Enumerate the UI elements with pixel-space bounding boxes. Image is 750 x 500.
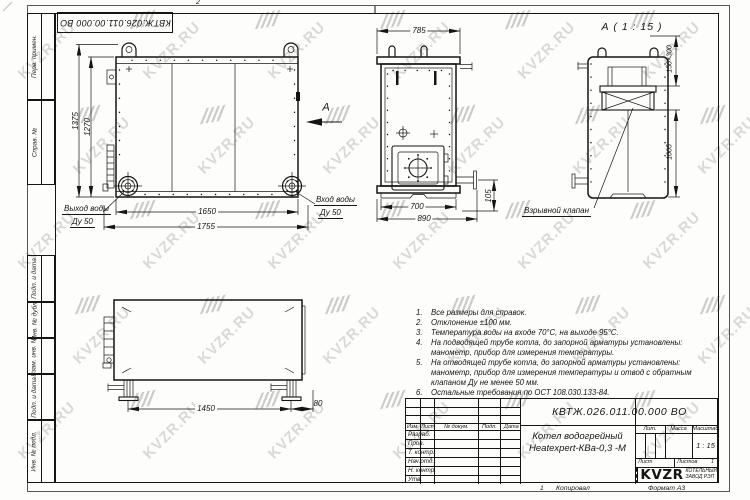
tb-sheet-label: Лист bbox=[638, 460, 652, 466]
tb-scale-value: 1 : 15 bbox=[692, 442, 719, 450]
tb-organization: KVZR КОТЕЛЬНЫЙ ЗАВОД РЭП bbox=[635, 467, 717, 482]
note-line: 4.На подводящей трубе котла, до запорной… bbox=[416, 338, 712, 348]
tb-rev-header: Дата bbox=[504, 425, 519, 431]
tb-rev-header: Изм. bbox=[407, 425, 419, 431]
tb-line bbox=[635, 433, 719, 434]
tb-sig-row: Пров. bbox=[408, 441, 424, 447]
tb-sig-row: Утв. bbox=[408, 477, 422, 483]
outlet-dn-label: Ду 50 bbox=[70, 218, 95, 228]
note-line: манометр, прибор для измерения температу… bbox=[416, 368, 712, 378]
note-line: 2.Отклонение ±100 мм. bbox=[416, 318, 712, 328]
designation-stamp: КВТЖ.026.011.00.000 ВО bbox=[57, 12, 173, 33]
margin-label: Справ. № bbox=[31, 128, 38, 158]
title-block: Изм. Лист № докум. Подп. Дата Разраб. Пр… bbox=[405, 398, 718, 483]
tb-sig-row: Т. контр. bbox=[408, 450, 435, 456]
margin-cell-divider bbox=[41, 101, 42, 184]
section-view-title: А ( 1 : 15 ) bbox=[601, 22, 662, 33]
format-label: Формат А3 bbox=[648, 485, 685, 492]
dim-side-overall: 890 bbox=[415, 215, 432, 223]
margin-label: Перв. примен. bbox=[31, 35, 38, 78]
note-line: 5.На отводящей трубе котла, до запорной … bbox=[416, 358, 712, 368]
margin-label: Инв. № дубл. bbox=[31, 300, 38, 340]
margin-cell-inv-dubl: Инв. № дубл. bbox=[27, 302, 55, 338]
margin-cell-divider bbox=[41, 14, 42, 99]
margin-label: Подп. и дата bbox=[31, 258, 38, 299]
note-line: клапаном Ду не менее 50 мм. bbox=[416, 378, 712, 388]
tb-rev-header: Подп. bbox=[482, 425, 497, 431]
note-line: 6.Остальные требования по ОСТ 108.030.13… bbox=[416, 388, 712, 398]
dim-side-pipe: 105 bbox=[485, 189, 493, 202]
tb-name-line1: Котел водогрейный bbox=[520, 432, 635, 442]
margin-label: Подп. и дата bbox=[31, 377, 38, 418]
kvzr-logo-text: KVZR bbox=[640, 467, 683, 483]
tb-sig-row: Разраб. bbox=[408, 432, 430, 438]
technical-notes: 1.Все размеры для справок. 2.Отклонение … bbox=[416, 308, 712, 398]
tb-line bbox=[478, 399, 479, 484]
margin-cell-vzam-inv: Взам. инв. № bbox=[27, 338, 55, 374]
kvzr-logo-icon bbox=[635, 468, 638, 482]
note-line: манометр, прибор для измерения температу… bbox=[416, 348, 712, 358]
tb-line bbox=[645, 433, 646, 458]
inlet-dn-label: Ду 50 bbox=[318, 209, 343, 219]
tb-sheets-value: 1 bbox=[711, 460, 714, 466]
dim-front-height-overall: 1375 bbox=[72, 112, 80, 130]
tb-lit-label: Лит. bbox=[635, 427, 665, 433]
tb-line bbox=[655, 433, 656, 458]
tb-sig-row: Н. контр. bbox=[408, 468, 436, 474]
margin-cell-perv-primen: Перв. примен. bbox=[27, 13, 55, 100]
note-line: 1.Все размеры для справок. bbox=[416, 308, 712, 318]
margin-cell-divider bbox=[41, 303, 42, 337]
tb-line bbox=[406, 475, 520, 476]
tb-line bbox=[500, 399, 501, 484]
dim-valve-size: 150×300 bbox=[667, 45, 674, 72]
tb-sheets-label: Листов bbox=[677, 460, 697, 466]
tb-designation: КВТЖ.026.011.00.000 ВО bbox=[520, 407, 719, 418]
tb-mass-label: Масса bbox=[665, 427, 692, 433]
margin-cell-podp-data-2: Подп. и дата bbox=[27, 374, 55, 420]
designation-stamp-text: КВТЖ.026.011.00.000 ВО bbox=[60, 18, 171, 28]
margin-cell-divider bbox=[41, 256, 42, 301]
tb-name-line2: Heatexpert-КВа-0,3 -М bbox=[520, 444, 635, 454]
dim-bottom-feet: 1450 bbox=[195, 405, 217, 413]
dim-front-height-body: 1270 bbox=[84, 118, 92, 136]
inlet-label: Вход воды bbox=[314, 196, 357, 206]
drawing-sheet: KVZR.RUKVZR.RUKVZR.RUKVZR.RUKVZR.RUKVZR.… bbox=[0, 0, 750, 500]
margin-cell-sprav-no: Справ. № bbox=[27, 100, 55, 185]
margin-cell-divider bbox=[41, 339, 42, 373]
copy-number: 1 bbox=[540, 485, 544, 492]
view-arrow-label: А bbox=[322, 103, 329, 114]
margin-cell-inv-podl: Инв. № подл. bbox=[27, 420, 55, 483]
tb-sig-row: Нач.отд. bbox=[408, 459, 434, 465]
dim-front-width-overall: 1755 bbox=[195, 223, 217, 231]
margin-label: Взам. инв. № bbox=[31, 336, 38, 376]
tb-line bbox=[406, 415, 520, 416]
note-line: 3.Температура воды на входе 70°С, на вых… bbox=[416, 328, 712, 338]
tb-rev-header: № докум. bbox=[444, 425, 469, 431]
explosion-valve-label: Взрывной клапан bbox=[522, 207, 591, 217]
dim-front-width-body: 1650 bbox=[196, 208, 218, 216]
tb-rev-header: Лист bbox=[421, 425, 435, 431]
margin-cell-podp-data-1: Подп. и дата bbox=[27, 255, 55, 302]
copied-label: Копировал bbox=[556, 485, 590, 492]
dim-section-height: 1005 bbox=[667, 144, 674, 160]
tb-line bbox=[406, 407, 520, 408]
dim-side-body: 700 bbox=[408, 203, 425, 211]
zone-number: 2 bbox=[196, 0, 200, 6]
margin-cell-divider bbox=[41, 375, 42, 419]
margin-label: Инв. № подл. bbox=[31, 431, 38, 471]
tb-scale-label: Масштаб bbox=[692, 427, 719, 433]
dim-side-top: 785 bbox=[410, 27, 427, 35]
margin-cell-divider bbox=[41, 421, 42, 482]
outlet-label: Выход воды bbox=[62, 205, 111, 215]
dim-bottom-offset: 80 bbox=[314, 400, 323, 408]
org-name: КОТЕЛЬНЫЙ ЗАВОД РЭП bbox=[686, 469, 717, 481]
